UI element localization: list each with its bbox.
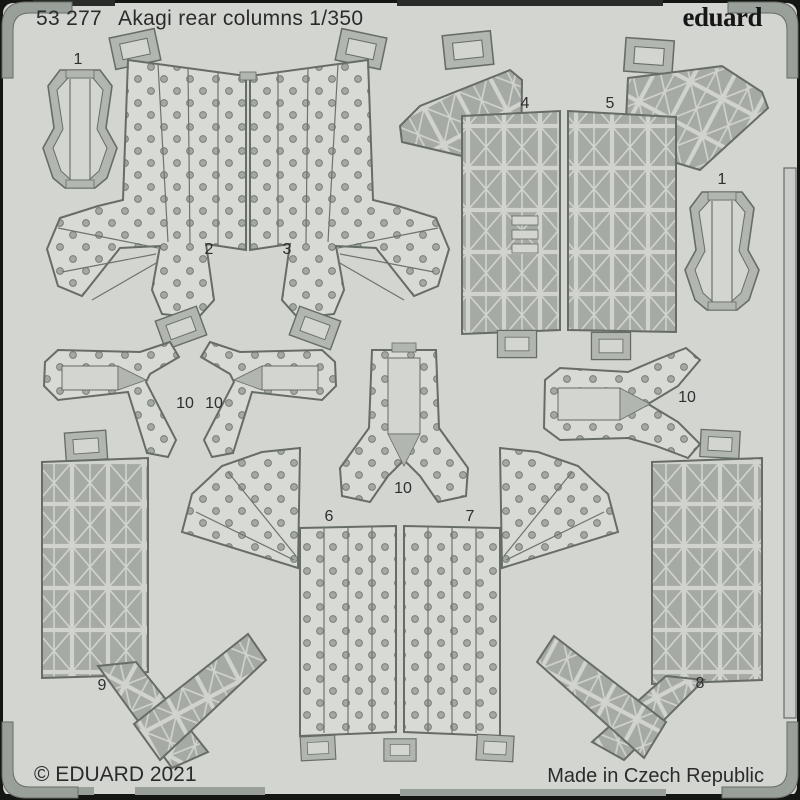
part-number-label: 7 bbox=[466, 508, 475, 526]
part-number-label: 3 bbox=[283, 241, 292, 259]
photo-etch-sheet-scan: 53 277 Akagi rear columns 1/350 eduard ©… bbox=[0, 0, 800, 800]
part-number-label: 2 bbox=[205, 241, 214, 259]
sheet-title: 53 277 Akagi rear columns 1/350 bbox=[36, 7, 363, 31]
part-1-ring-duplicate bbox=[685, 192, 759, 310]
catalog-number: 53 277 bbox=[36, 7, 102, 31]
part-4-column bbox=[462, 111, 560, 334]
part-number-label: 6 bbox=[325, 508, 334, 526]
product-title: Akagi rear columns 1/350 bbox=[118, 7, 363, 31]
part-number-label: 1 bbox=[718, 171, 727, 189]
part-number-label: 1 bbox=[74, 51, 83, 69]
eduard-logo: eduard bbox=[682, 2, 762, 33]
part-number-label: 9 bbox=[98, 677, 107, 695]
part-number-label: 10 bbox=[176, 395, 194, 413]
part-number-label: 10 bbox=[394, 480, 412, 498]
part-5-column bbox=[568, 111, 676, 332]
part-number-label: 8 bbox=[696, 675, 705, 693]
part-number-label: 10 bbox=[205, 395, 223, 413]
fret-right-rail bbox=[784, 168, 796, 718]
copyright-text: © EDUARD 2021 bbox=[34, 763, 197, 787]
part-number-label: 5 bbox=[606, 95, 615, 113]
part-1-ring bbox=[43, 70, 117, 188]
part-number-label: 10 bbox=[678, 389, 696, 407]
made-in-text: Made in Czech Republic bbox=[547, 765, 764, 788]
part-number-label: 4 bbox=[521, 95, 530, 113]
